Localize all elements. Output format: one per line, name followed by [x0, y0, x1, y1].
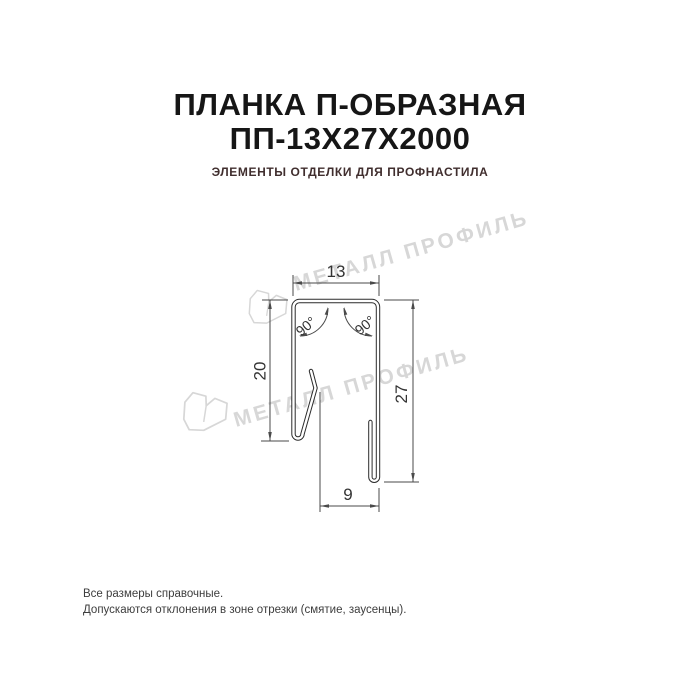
dim-bottom-width-label: 9: [343, 485, 352, 504]
dimension-right-height: 27: [384, 300, 419, 482]
arrow-icon: [342, 307, 347, 316]
watermark-upper: МЕТАЛЛ ПРОФИЛЬ: [244, 207, 532, 327]
arrow-down-icon: [268, 432, 272, 441]
angle-annotation-left: 90°: [293, 307, 330, 339]
angle-annotation-right: 90°: [342, 307, 378, 338]
arrow-left-icon: [320, 504, 329, 508]
angle-right-label: 90°: [352, 312, 379, 338]
dim-left-height-label: 20: [251, 362, 270, 381]
dim-top-width-label: 13: [327, 262, 346, 281]
arrow-right-icon: [370, 504, 379, 508]
page: ПЛАНКА П-ОБРАЗНАЯ ПП-13Х27Х2000 ЭЛЕМЕНТЫ…: [0, 0, 700, 700]
footer-note-line2: Допускаются отклонения в зоне отрезки (с…: [83, 603, 406, 619]
angle-left-label: 90°: [293, 313, 320, 339]
arrow-down-icon: [411, 473, 415, 482]
watermark-lower: МЕТАЛЛ ПРОФИЛЬ: [177, 343, 471, 435]
footer-note-line1: Все размеры справочные.: [83, 587, 406, 603]
arrow-icon: [325, 307, 330, 316]
dim-right-height-label: 27: [392, 385, 411, 404]
watermark-text: МЕТАЛЛ ПРОФИЛЬ: [231, 343, 472, 432]
watermark-text: МЕТАЛЛ ПРОФИЛЬ: [291, 207, 532, 296]
footer-notes: Все размеры справочные. Допускаются откл…: [83, 587, 406, 618]
arrow-right-icon: [370, 281, 379, 285]
arrow-up-icon: [411, 300, 415, 309]
